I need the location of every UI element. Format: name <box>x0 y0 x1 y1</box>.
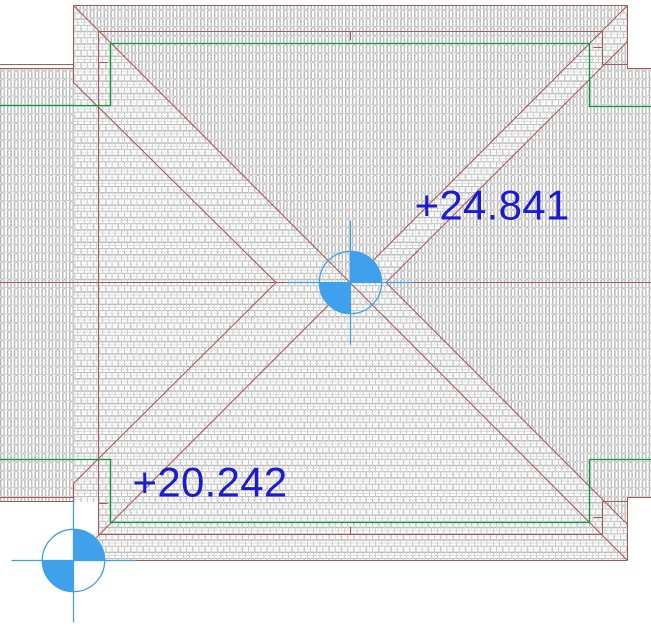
svg-text:+20.242: +20.242 <box>133 459 288 506</box>
svg-text:+24.841: +24.841 <box>415 182 570 229</box>
